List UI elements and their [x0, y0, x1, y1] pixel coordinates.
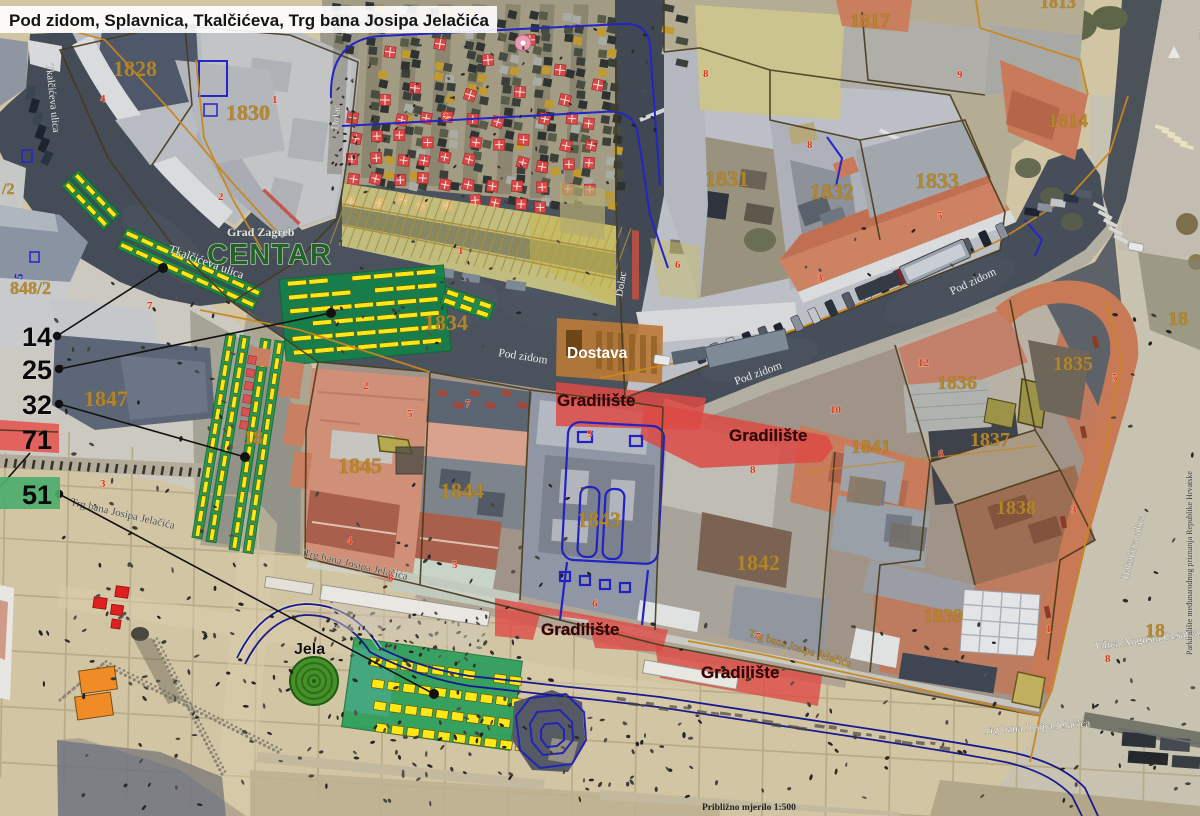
svg-text:Parkiralište međunarodnog priz: Parkiralište međunarodnog priznanja Repu… [1185, 471, 1194, 655]
svg-text:1836: 1836 [937, 372, 977, 394]
svg-text:5: 5 [937, 210, 943, 222]
svg-text:8: 8 [1105, 653, 1111, 665]
svg-text:1832: 1832 [810, 179, 854, 204]
svg-text:7: 7 [465, 398, 471, 410]
svg-text:2: 2 [443, 111, 449, 123]
svg-text:3: 3 [817, 272, 823, 284]
svg-text:CENTAR: CENTAR [207, 239, 332, 271]
svg-text:8: 8 [807, 139, 813, 151]
svg-text:2: 2 [218, 191, 224, 203]
svg-text:18: 18 [1145, 620, 1165, 642]
svg-text:12: 12 [918, 357, 930, 369]
svg-text:5: 5 [407, 408, 413, 420]
svg-text:Gradilište: Gradilište [541, 620, 619, 639]
svg-text:1813: 1813 [1040, 0, 1076, 12]
svg-text:1837: 1837 [970, 429, 1010, 451]
svg-text:9: 9 [957, 69, 963, 81]
svg-text:1847: 1847 [84, 386, 128, 411]
svg-text:Gradilište: Gradilište [729, 426, 807, 445]
svg-text:7: 7 [147, 300, 153, 312]
svg-text:/2: /2 [1, 181, 14, 198]
svg-text:1: 1 [458, 245, 464, 257]
svg-text:32: 32 [22, 390, 52, 420]
svg-text:1841: 1841 [851, 436, 891, 458]
svg-text:7: 7 [755, 631, 761, 643]
svg-text:1844: 1844 [440, 478, 484, 503]
svg-text:8: 8 [750, 464, 756, 476]
svg-text:848/2: 848/2 [10, 278, 51, 298]
svg-text:1: 1 [272, 94, 278, 106]
svg-text:1835: 1835 [1053, 353, 1093, 375]
svg-text:6: 6 [938, 448, 944, 460]
svg-text:5: 5 [452, 559, 458, 571]
svg-text:Gradilište: Gradilište [557, 391, 635, 410]
svg-text:10: 10 [830, 404, 842, 416]
svg-text:1838: 1838 [996, 497, 1036, 519]
svg-text:1833: 1833 [915, 168, 959, 193]
svg-text:3: 3 [100, 478, 106, 490]
svg-text:Dolac: Dolac [330, 104, 343, 130]
svg-text:9: 9 [587, 428, 593, 440]
svg-text:1845: 1845 [338, 453, 382, 478]
svg-text:4: 4 [347, 535, 353, 547]
svg-text:14: 14 [22, 322, 52, 352]
svg-text:1830: 1830 [226, 100, 270, 125]
svg-text:1834: 1834 [424, 310, 468, 335]
svg-text:4: 4 [100, 93, 106, 105]
svg-text:Jela: Jela [294, 641, 325, 658]
svg-text:8: 8 [703, 68, 709, 80]
svg-text:2: 2 [363, 380, 369, 392]
svg-text:3: 3 [1071, 504, 1077, 516]
svg-text:1831: 1831 [705, 166, 749, 191]
svg-text:1843: 1843 [577, 507, 621, 532]
svg-text:51: 51 [22, 480, 52, 510]
svg-text:Dostava: Dostava [567, 345, 628, 362]
svg-text:1839: 1839 [923, 605, 963, 627]
svg-text:1814: 1814 [1048, 110, 1088, 132]
svg-text:1817: 1817 [850, 10, 890, 32]
svg-text:1828: 1828 [113, 56, 157, 81]
svg-text:Pod zidom, Splavnica, Tkalčiće: Pod zidom, Splavnica, Tkalčićeva, Trg ba… [9, 11, 490, 30]
svg-text:6: 6 [675, 259, 681, 271]
svg-text:1: 1 [1046, 623, 1052, 635]
svg-text:Gradilište: Gradilište [701, 663, 779, 682]
svg-text:8: 8 [388, 572, 394, 584]
svg-text:6: 6 [592, 598, 598, 610]
svg-text:5: 5 [1112, 372, 1118, 384]
svg-text:18: 18 [1168, 308, 1188, 330]
svg-text:Približno mjerilo 1:500: Približno mjerilo 1:500 [702, 803, 796, 813]
svg-text:18: 18 [243, 427, 263, 449]
svg-text:Grad Zagreb: Grad Zagreb [227, 225, 295, 239]
svg-text:1842: 1842 [736, 550, 780, 575]
svg-text:71: 71 [22, 425, 52, 455]
svg-text:25: 25 [22, 355, 52, 385]
